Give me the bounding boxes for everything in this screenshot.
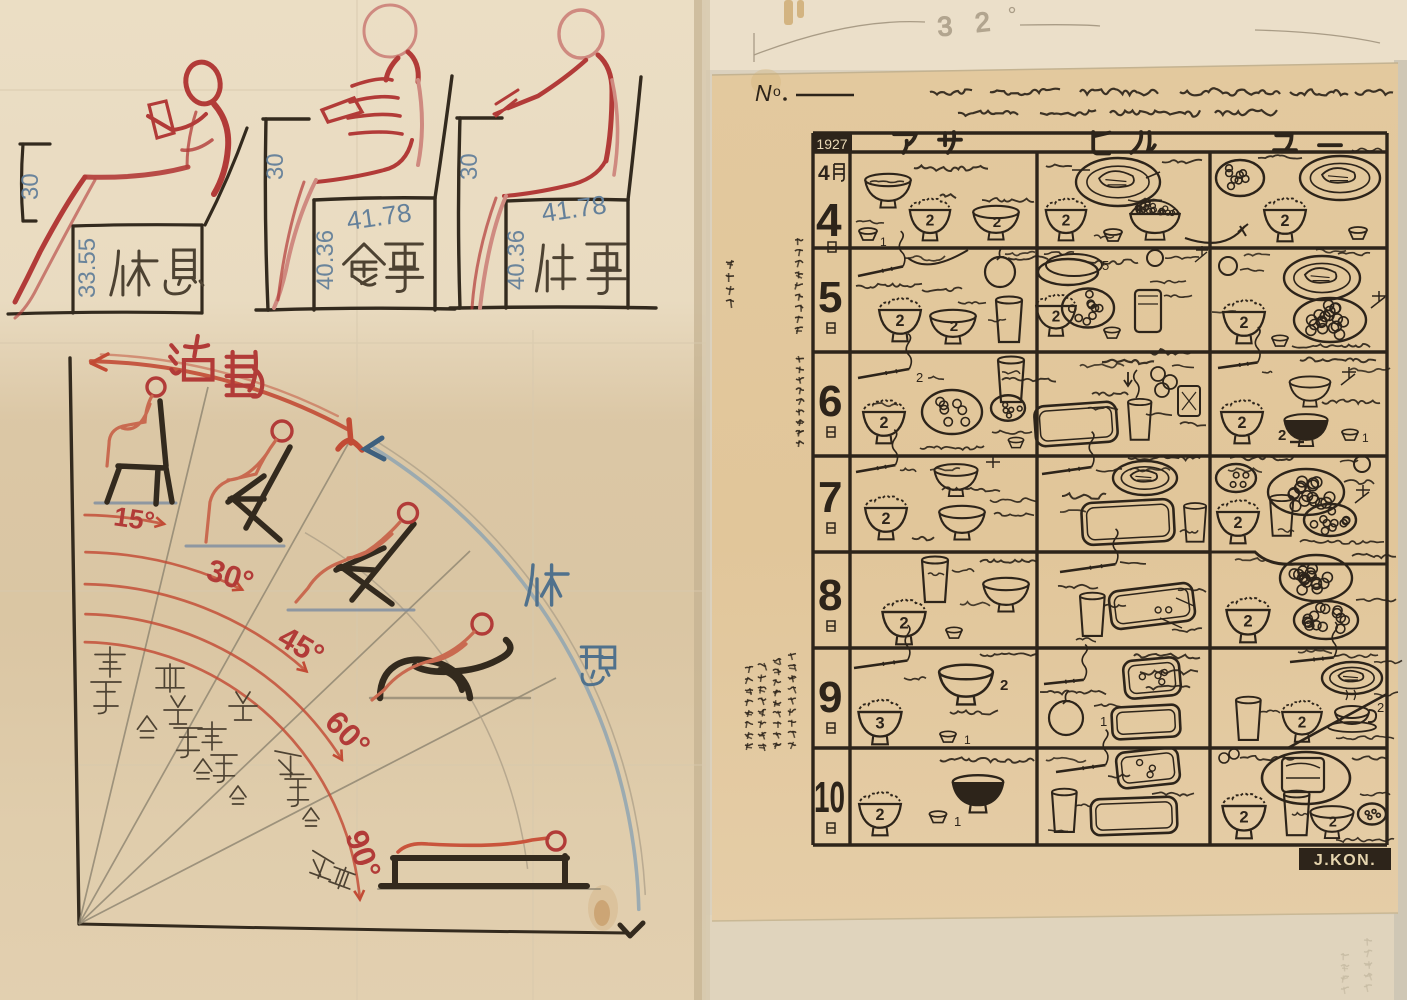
svg-text:2: 2 [880, 414, 889, 432]
svg-text:30: 30 [262, 153, 289, 180]
svg-text:2: 2 [1298, 714, 1307, 731]
svg-text:5: 5 [1102, 258, 1109, 273]
svg-text:2: 2 [926, 213, 935, 230]
svg-text:3: 3 [936, 11, 953, 42]
svg-text:N: N [755, 80, 772, 106]
svg-text:15°: 15° [112, 501, 157, 536]
svg-text:33.55: 33.55 [74, 238, 101, 298]
svg-text:40.36: 40.36 [503, 230, 530, 290]
svg-text:1927: 1927 [816, 136, 847, 152]
svg-text:30: 30 [456, 153, 483, 180]
svg-text:2: 2 [1240, 314, 1249, 332]
svg-text:2: 2 [1234, 514, 1243, 532]
svg-text:2: 2 [1000, 677, 1008, 694]
svg-text:8: 8 [818, 571, 842, 620]
svg-text:o: o [773, 83, 781, 99]
svg-text:30: 30 [17, 173, 44, 200]
svg-text:2: 2 [1278, 427, 1286, 444]
svg-text:2: 2 [1281, 212, 1290, 230]
svg-text:2: 2 [1062, 213, 1071, 230]
svg-text:4: 4 [816, 194, 842, 246]
svg-text:7: 7 [818, 473, 842, 522]
svg-text:2: 2 [1329, 814, 1337, 830]
svg-text:1: 1 [880, 235, 887, 249]
svg-text:2: 2 [1377, 700, 1384, 715]
svg-text:2: 2 [1238, 414, 1247, 432]
svg-text:2: 2 [896, 312, 905, 330]
svg-text:1: 1 [964, 733, 971, 747]
svg-text:1: 1 [954, 814, 961, 829]
svg-text:3: 3 [875, 714, 884, 733]
svg-text:40.36: 40.36 [312, 230, 339, 290]
svg-text:1: 1 [1100, 714, 1107, 729]
svg-text:6: 6 [818, 377, 842, 426]
svg-text:2: 2 [876, 806, 885, 824]
svg-text:2: 2 [916, 370, 923, 385]
svg-text:9: 9 [818, 673, 842, 722]
svg-text:J.KON.: J.KON. [1314, 852, 1376, 869]
svg-text:1: 1 [1362, 431, 1369, 445]
svg-text:2: 2 [882, 510, 891, 528]
svg-text:2: 2 [973, 7, 991, 38]
svg-text:4: 4 [818, 162, 830, 185]
svg-text:2: 2 [1239, 808, 1248, 827]
svg-text:2: 2 [899, 614, 908, 633]
svg-text:2: 2 [1243, 612, 1252, 631]
svg-text:2: 2 [950, 318, 958, 335]
svg-text:5: 5 [818, 273, 842, 322]
svg-text:10: 10 [814, 773, 845, 822]
svg-text:2: 2 [993, 214, 1001, 231]
svg-text:2: 2 [1052, 308, 1061, 325]
